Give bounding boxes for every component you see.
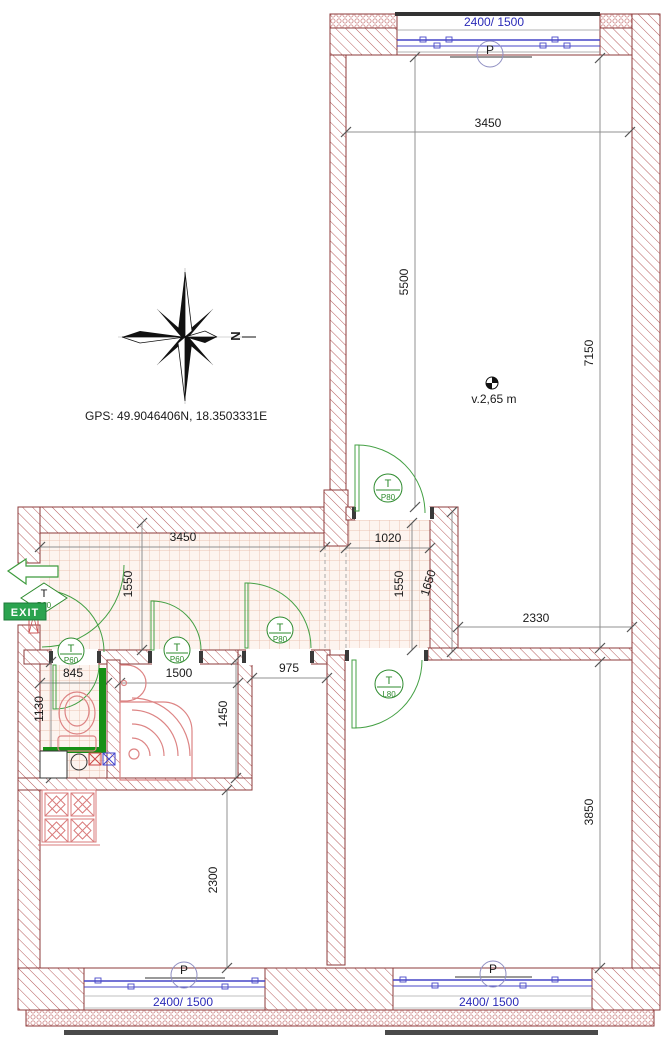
door-entry-type: T <box>41 588 48 600</box>
dim-lower-right-width: 2330 <box>523 611 550 625</box>
dim-top-room-width: 3450 <box>475 116 502 130</box>
wall-central <box>327 655 345 965</box>
door-middle-room-size: P80 <box>273 635 288 644</box>
opening-bottom-room <box>345 648 428 662</box>
cabinet <box>40 751 67 778</box>
wall-wc-bath-divider <box>107 660 120 778</box>
dim-bathroom-width: 1500 <box>166 666 193 680</box>
dim-niche-width: 975 <box>279 661 299 675</box>
wall-bottom-room-top <box>428 648 632 660</box>
window-bottom-right-mark: P <box>489 962 497 976</box>
compass-north-letter: N <box>228 331 243 340</box>
wall-left-upper <box>18 507 40 563</box>
door-bathroom-size: P60 <box>170 655 185 664</box>
section-bar-bottom-left <box>64 1030 278 1035</box>
door-bottom-right-size: L80 <box>382 690 396 699</box>
dim-bathroom-depth: 1450 <box>216 700 230 727</box>
wall-pier <box>324 490 348 546</box>
wall-bottom-mid-block <box>265 968 393 1010</box>
dim-middle-room-depth: 2300 <box>206 866 220 893</box>
dim-vestibule-width: 1020 <box>375 531 402 545</box>
door-wc-type: T <box>68 643 75 655</box>
ceiling-height-label: v.2,65 m <box>471 392 516 406</box>
gps-coordinates: GPS: 49.9046406N, 18.3503331E <box>85 409 267 423</box>
window-bottom-left-size: 2400/ 1500 <box>153 995 213 1009</box>
wall-bath-right <box>238 650 252 778</box>
window-bottom-right-size: 2400/ 1500 <box>459 995 519 1009</box>
window-bottom-left-mark: P <box>180 963 188 977</box>
floor-plan-drawing: 3450 5500 7150 2330 1020 3450 1550 1550 … <box>0 0 672 1042</box>
dim-top-room-depth: 5500 <box>397 268 411 295</box>
insulation-bottom <box>26 1010 654 1026</box>
passage-floor <box>325 546 346 650</box>
dim-bottom-right-depth: 3850 <box>582 798 596 825</box>
dim-corridor-width: 3450 <box>170 530 197 544</box>
door-bottom-right-type: T <box>386 675 393 687</box>
floor-plan-page: 3450 5500 7150 2330 1020 3450 1550 1550 … <box>0 0 672 1042</box>
door-bathroom-type: T <box>174 642 181 654</box>
dim-right-total: 7150 <box>582 339 596 366</box>
window-top-mark: P <box>486 43 494 57</box>
wall-left-lower <box>18 625 40 968</box>
wall-right-outer <box>632 14 660 1010</box>
dim-vestibule-depth: 1550 <box>392 570 406 597</box>
opening-top-room <box>355 507 432 520</box>
wall-bottom-left-block <box>18 968 84 1010</box>
wall-bottom-right-block <box>592 968 660 1010</box>
door-middle-room-type: T <box>277 622 284 634</box>
dim-wc-width: 845 <box>63 666 83 680</box>
door-wc-size: P60 <box>64 656 79 665</box>
window-top-size: 2400/ 1500 <box>464 15 524 29</box>
wall-top-room-left <box>330 55 346 507</box>
door-top-room-type: T <box>385 478 392 490</box>
green-wall-vertical <box>99 668 106 752</box>
door-top-room-size: P80 <box>381 493 396 502</box>
dim-wc-depth: 1130 <box>32 696 46 722</box>
insulation-top-left <box>330 14 397 28</box>
exit-sign-label: EXIT <box>11 607 39 619</box>
wall-top-left <box>330 28 397 55</box>
section-bar-bottom-right <box>385 1030 598 1035</box>
